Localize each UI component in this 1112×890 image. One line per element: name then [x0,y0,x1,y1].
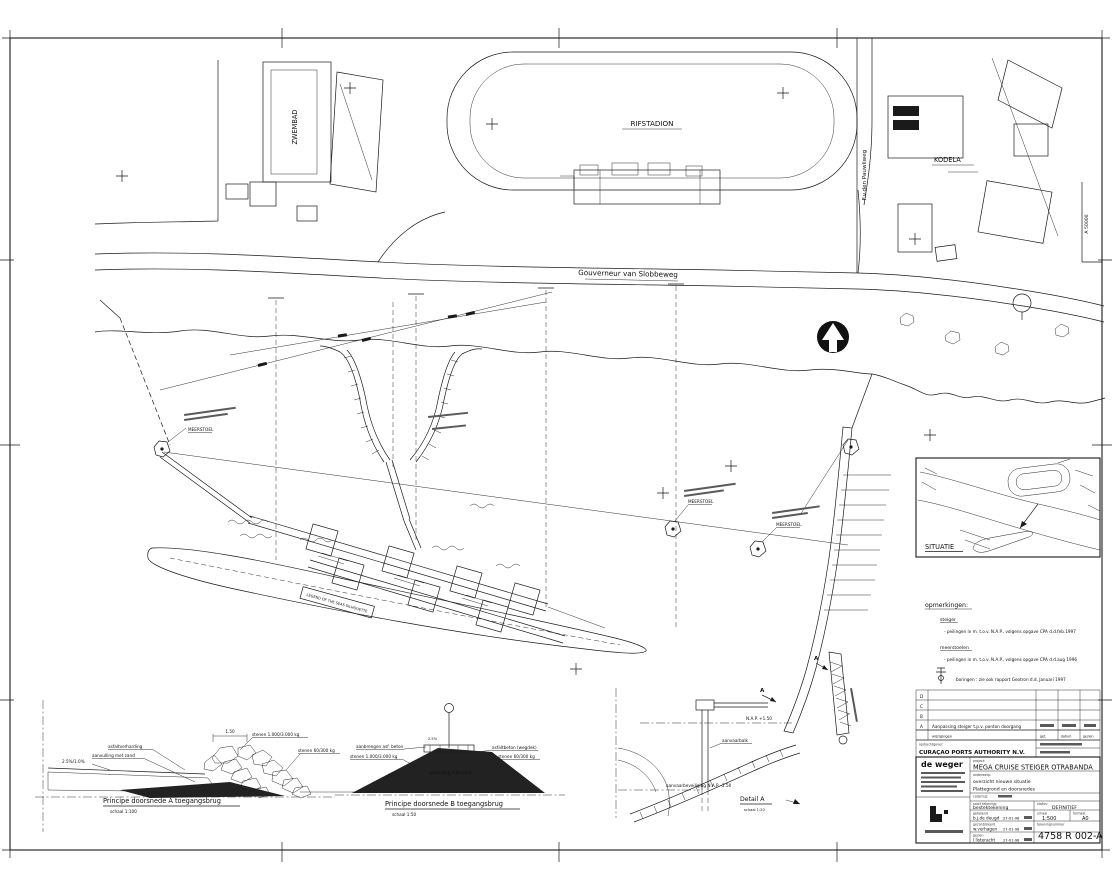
section-a-slope-label: 2.5%/1.0% [62,759,85,764]
detail-bev-label: aanvaarbeveiliging N.A.P. -2.50 [666,783,732,788]
number-label: tekeningnummer [1037,823,1065,827]
meerstoel-label: MEERSTOEL [688,499,714,504]
rifstadion-label: RIFSTADION [630,119,673,128]
section-b-label2: stenen 1.000/3.000 kg [350,754,398,759]
zwembad-label: ZWEMBAD [291,109,299,144]
rev-footer: wijzigingen [932,735,952,739]
site-plan: ZWEMBAD RIFSTADION Gouverneur van Slobbe… [95,38,1105,445]
client-name: CURAÇAO PORTS AUTHORITY N.V. [919,750,1025,756]
notes-item-meerstoelen: - peilingen in m. t.o.v. N.A.P., volgens… [944,657,1077,662]
project-label: project: [973,759,985,763]
section-b-label4: asfaltbeton (wegdek) [492,745,537,750]
r2-name: w.verhagen [973,827,998,832]
section-a-title: Principe doorsnede A toegangsbrug [103,797,221,805]
firm-logo [925,806,963,833]
revision-table: D C B A Aanpassing steiger t.p.v. ponton… [916,690,1100,740]
section-b-label5: stenen 60/300 kg [498,754,535,759]
title-block: opdrachtgever: CURAÇAO PORTS AUTHORITY N… [916,740,1103,843]
status-label: status: [1037,802,1048,806]
notes-item-steiger: - peilingen in m. t.o.v. N.A.P., volgens… [944,629,1076,634]
kodela-label: KODELA [934,156,961,164]
situatie-inset: SITUATIE [916,458,1100,557]
section-a-fill-label: aanvulling met zand [92,753,135,758]
meerstoel-label: MEERSTOEL [188,427,214,432]
situatie-label: SITUATIE [925,543,954,551]
notes-title: opmerkingen: [925,602,968,609]
notes-heading-meerstoelen: meerstoelen [940,645,969,651]
status-value: DEFINITIEF [1052,805,1077,811]
detail-a: N.A.P. +1.50 aanvaarbalk aanvaarbeveilig… [616,688,800,822]
section-b-title: Principe doorsnede B toegangsbrug [385,800,503,808]
road-main-label: Gouverneur van Slobbeweg [578,268,678,279]
subject-line1: overzicht nieuwe situatie [973,779,1031,785]
pier-structure: LEGEND OF THE SEAS SILHOUETTE MEERSTOEL … [148,284,859,653]
r1-date: 27-01-98 [1003,817,1020,821]
section-b-fill-label: aanvulling met zand [429,770,472,775]
rev-row-a-text: Aanpassing steiger t.p.v. ponton doorgan… [932,724,1021,729]
rev-col-get: get. [1040,735,1046,739]
parcel-ref-label: A 50000 [1084,214,1090,233]
soort-value: bestektekening [973,805,1008,811]
client-label: opdrachtgever: [919,743,943,747]
subject-line2: Plattegrond en doorsnedes [973,787,1036,793]
schaal-label: schaal [1037,812,1047,816]
drawing-sheet: ZWEMBAD RIFSTADION Gouverneur van Slobbe… [0,0,1112,890]
meerstoel-label: MEERSTOEL [776,522,802,527]
section-cut-marker: A [760,688,765,694]
rev-letter: D [920,694,923,699]
rev-letter: C [920,704,923,709]
section-a: 1.50 2.5%/1.0% asfaltverharding aanvulli… [35,700,340,832]
formaat-label: formaat [1073,812,1086,816]
detail-a-title: Detail A [740,796,765,803]
notes-item-boringen: boringen : zie ook rapport Geotron d.d. … [956,677,1066,682]
notes-heading-steiger: steiger [940,617,956,623]
section-b-scale: schaal 1:50 [392,812,417,817]
drawing-number: 4758 R 002-A [1038,831,1103,842]
r1-name: b.j.de deugd [973,816,1000,821]
r3-name: l.listeracht [973,838,995,843]
section-cut-marker: A [814,656,819,662]
r3-date: 27-01-98 [1003,839,1020,843]
section-a-pav-label: asfaltverharding [108,744,143,749]
r2-date: 27-01-98 [1003,828,1020,832]
firm-name: de weger [921,760,963,769]
revetment: A A [760,374,891,744]
notes-block: opmerkingen: steiger - peilingen in m. t… [925,602,1077,684]
section-b: aanvulling met zand 1:1.5 aanbrengen asf… [300,704,565,818]
section-b-label3: 2.5% [428,737,438,741]
detail-balk-label: aanvaarbalk [722,738,749,743]
formaat-value: A0 [1082,816,1089,822]
boring-symbol-icon [936,668,946,684]
cad-drawing-canvas: ZWEMBAD RIFSTADION Gouverneur van Slobbe… [0,0,1112,890]
code-label: codering: [973,795,988,799]
rev-letter: A [920,724,923,729]
section-b-label1: aanbrengen asf. beton [356,744,404,749]
section-a-dim: 1.50 [225,729,235,734]
section-a-stone2-label: stenen 60/300 kg [298,748,335,753]
detail-a-scale: schaal 1:20 [744,808,765,812]
north-arrow-icon [817,321,849,353]
detail-nap-label: N.A.P. +1.50 [746,716,772,721]
rev-col-gezien: gezien [1083,735,1094,739]
rev-col-datum: datum [1061,735,1071,739]
subject-label: onderwerp: [973,773,991,777]
section-a-stone1-label: stenen 1.000/3.000 kg [252,732,300,737]
project-name: MEGA CRUISE STEIGER OTRABANDA [973,764,1093,772]
section-a-scale: schaal 1:100 [110,809,137,814]
schaal-value: 1:500 [1042,816,1056,822]
rev-letter: B [920,714,923,719]
road-side-label: F.v.den Pauwliweg [862,149,868,200]
